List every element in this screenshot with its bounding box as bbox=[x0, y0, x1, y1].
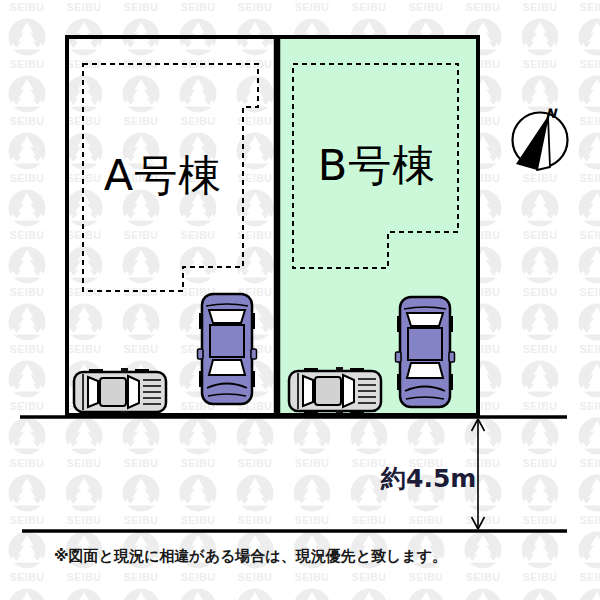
plot-a-label: A号棟 bbox=[104, 147, 222, 205]
compact-car-plot-b bbox=[289, 367, 381, 415]
sedan-car-plot-b bbox=[396, 297, 455, 407]
plot-b-label: B号棟 bbox=[318, 137, 437, 195]
sedan-car-plot-a bbox=[198, 294, 257, 404]
disclaimer-note: ※図面と現況に相違がある場合は、現況優先と致します。 bbox=[54, 547, 447, 566]
compass: N bbox=[513, 106, 568, 170]
site-plan-drawing: N bbox=[0, 0, 600, 600]
road-width-dimension-label: 約4.5m bbox=[381, 462, 476, 495]
compact-car-plot-a bbox=[74, 368, 166, 416]
site-plan-image: SEIBUSEIBUSEIBUSEIBUSEIBUSEIBUSEIBUSEIBU… bbox=[0, 0, 600, 600]
